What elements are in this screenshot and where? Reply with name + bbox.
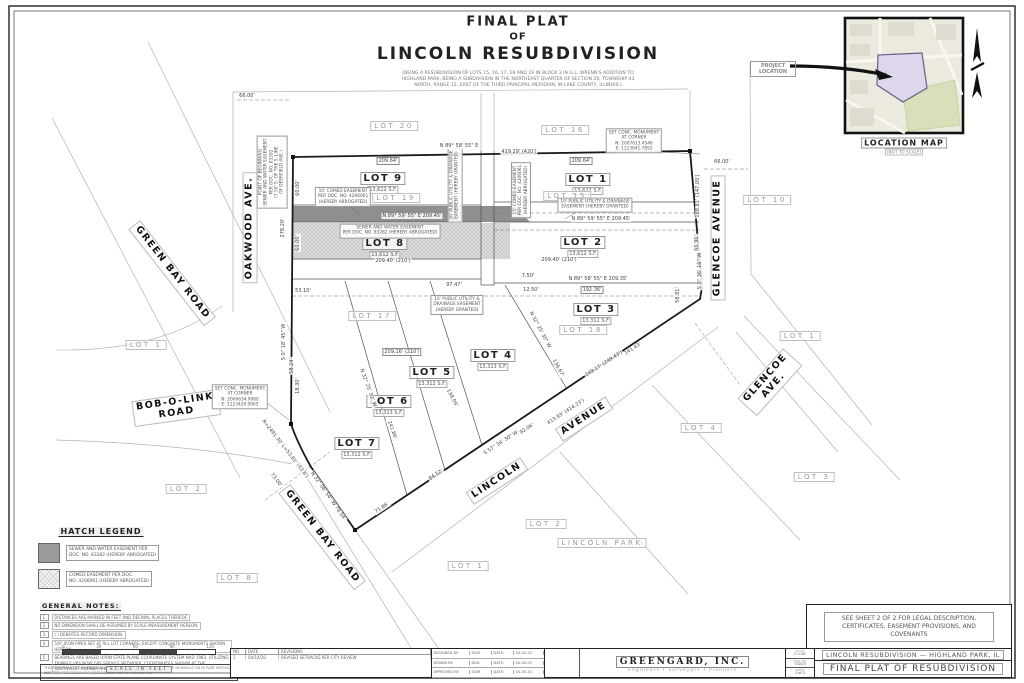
scale-tick: 120: [206, 644, 214, 649]
scale-bar: 0306090120 SCALE IN FEET: [62, 644, 216, 674]
revision-rows: 1 04/14/20 REVISED SETBACKS PER CITY REV…: [231, 655, 431, 660]
sheet2-note: SEE SHEET 2 OF 2 FOR LEGAL DESCRIPTION, …: [824, 612, 994, 642]
drawing-title: FINAL PLAT OF RESUBDIVISION: [823, 663, 1003, 675]
hatch-legend-text: COMED EASEMENT PER DOC.NO. 4206061 (HERE…: [66, 571, 152, 586]
sheet-number: 1 of 2: [795, 672, 805, 676]
hatch-legend-item: SEWER AND WATER EASEMENT PERDOC. NO. 832…: [38, 543, 159, 563]
firm-logo-cell: [545, 649, 580, 677]
firm-info: GREENGARD, INC. Engineers • Surveyors • …: [580, 649, 785, 677]
hatch-legend-title: HATCH LEGEND: [58, 527, 143, 537]
hatch-legend-text: SEWER AND WATER EASEMENT PERDOC. NO. 832…: [66, 545, 159, 560]
sheet-info-block: SCALE: 1"=50' PROJ. NO. 70223 SHEET 1 of…: [786, 649, 815, 677]
firm-name: GREENGARD, INC.: [616, 656, 750, 668]
project-title-block: LINCOLN RESUBDIVISION — HIGHLAND PARK, I…: [815, 649, 1011, 677]
scale-tick: 90: [170, 644, 175, 649]
scale-tick: 30: [96, 644, 101, 649]
revision-row: 1 04/14/20 REVISED SETBACKS PER CITY REV…: [231, 655, 431, 660]
scale-value: 1"=50': [794, 653, 807, 657]
title-block-strip: NO. DATE REVISIONS 1 04/14/20 REVISED SE…: [230, 648, 1012, 678]
staff-row: APPROVED BY: DGM DATE: 04-30-20: [432, 668, 544, 678]
scale-tick: 60: [133, 644, 138, 649]
project-title: LINCOLN RESUBDIVISION — HIGHLAND PARK, I…: [822, 650, 1004, 660]
general-notes-title: GENERAL NOTES:: [40, 602, 121, 611]
scale-bar-label: SCALE IN FEET: [106, 666, 172, 673]
hatch-legend-item: COMED EASEMENT PER DOC.NO. 4206061 (HERE…: [38, 569, 152, 589]
staff-block: DESIGNED BY: DGM DATE: 04-30-20 DRAWN BY…: [432, 649, 545, 677]
sheet2-note-panel: SEE SHEET 2 OF 2 FOR LEGAL DESCRIPTION, …: [806, 604, 1012, 650]
firm-block: GREENGARD, INC. Engineers • Surveyors • …: [545, 649, 786, 677]
general-note: 1. DISTANCES ARE MARKED IN FEET AND DECI…: [40, 614, 232, 621]
project-number: 70223: [794, 663, 805, 667]
revisions-block: NO. DATE REVISIONS 1 04/14/20 REVISED SE…: [231, 649, 432, 677]
hatch-legend: HATCH LEGEND: [0, 0, 1024, 683]
scale-tick: 0: [62, 644, 65, 649]
plat-sheet: FINAL PLAT OF LINCOLN RESUBDIVISION (BEI…: [0, 0, 1024, 683]
firm-tagline: Engineers • Surveyors • Planners: [580, 668, 785, 673]
staff-row: DRAWN BY: DRD DATE: 04-30-20: [432, 659, 544, 669]
hatch-swatch-icon: [38, 543, 60, 563]
general-note: 3. ( ) DENOTES RECORD DIMENSION.: [40, 631, 232, 638]
general-note: 2. NO DIMENSION SHALL BE ASSUMED BY SCAL…: [40, 622, 232, 629]
scale-bar-segments: [62, 649, 216, 655]
hatch-swatch-icon: [38, 569, 60, 589]
staff-rows: DESIGNED BY: DGM DATE: 04-30-20 DRAWN BY…: [432, 649, 544, 678]
staff-row: DESIGNED BY: DGM DATE: 04-30-20: [432, 649, 544, 659]
